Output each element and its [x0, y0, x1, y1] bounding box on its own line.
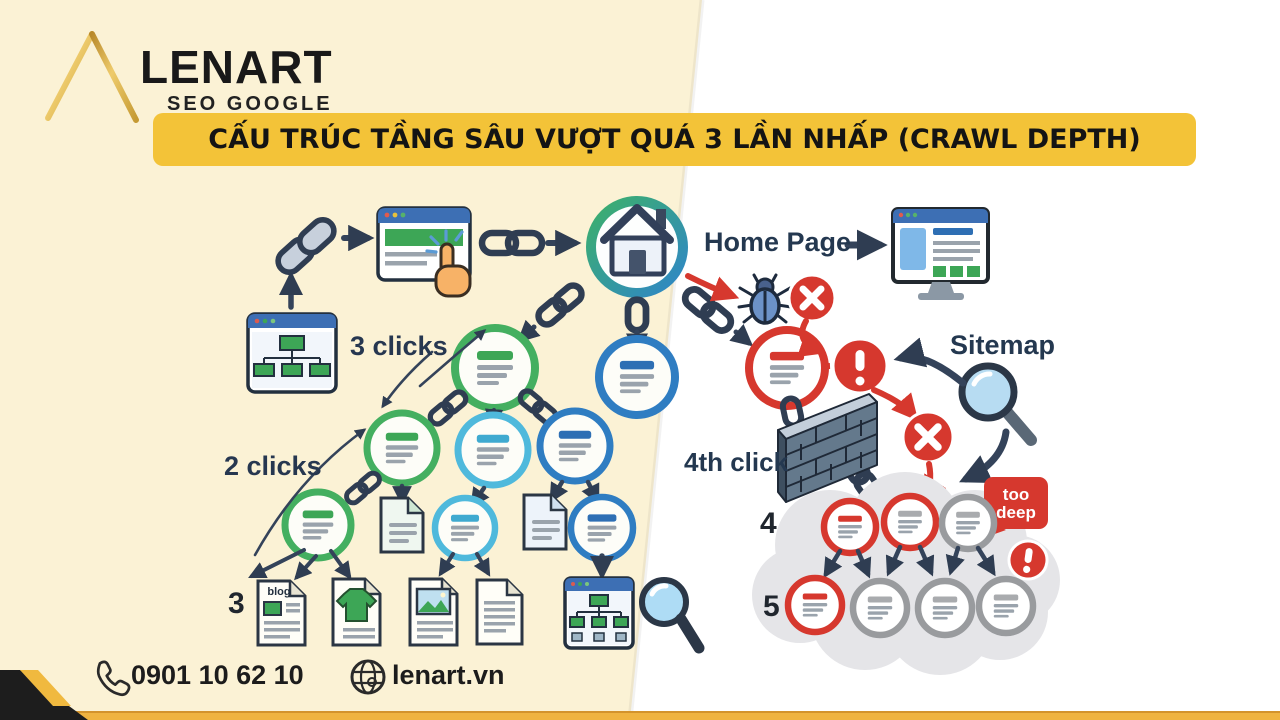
too-deep-line2: deep: [996, 504, 1036, 522]
label-depth-5: 5: [763, 590, 780, 624]
label-2-clicks: 2 clicks: [224, 451, 322, 482]
text-document-icon: [477, 580, 522, 644]
page-node-red: [749, 330, 825, 406]
label-blog-doc: blog: [262, 586, 296, 598]
label-too-deep: too deep: [984, 479, 1048, 529]
label-3-clicks: 3 clicks: [350, 331, 448, 362]
bottom-gold-strip: [0, 712, 1280, 720]
page-node-blue-l3: [571, 497, 633, 559]
crawl-depth-infographic: LENART SEO GOOGLE CẤU TRÚC TẦNG SÂU VƯỢT…: [0, 0, 1280, 720]
image-document-icon: [410, 579, 457, 645]
down-right-arrow: [736, 332, 749, 343]
page-node-lightblue-l2: [458, 415, 528, 485]
page-node-lightblue-l3: [435, 498, 495, 558]
document-icon: [524, 495, 566, 549]
label-sitemap: Sitemap: [950, 330, 1055, 361]
error-x-icon-2: [903, 412, 953, 462]
dark-curve-arrow: [966, 432, 1006, 479]
page-node-green-l3: [285, 492, 351, 558]
label-home-page: Home Page: [704, 227, 851, 258]
title-banner: CẤU TRÚC TẦNG SÂU VƯỢT QUÁ 3 LẦN NHẤP (C…: [153, 113, 1196, 166]
monitor-icon: [893, 209, 988, 300]
footer-phone-number: 0901 10 62 10: [131, 660, 304, 691]
page-node-d4-2: [884, 496, 936, 548]
error-x-icon: [789, 275, 835, 321]
sitemap-window-icon: [248, 314, 336, 392]
magnifier-icon-sitemap: [962, 366, 1031, 440]
label-4th-click: 4th click: [684, 447, 788, 478]
document-icon: [381, 498, 423, 552]
too-deep-line1: too: [1003, 486, 1029, 504]
page-node-d5-1: [788, 578, 842, 632]
magnifier-icon: [642, 580, 699, 648]
brand-logo-text: LENART: [140, 40, 333, 94]
footer-website: lenart.vn: [392, 660, 505, 691]
red-arrow: [874, 390, 914, 416]
product-document-icon: [333, 579, 380, 645]
home-icon: [591, 201, 683, 293]
label-depth-4: 4: [760, 507, 777, 541]
warning-icon: [833, 339, 887, 393]
crawler-bug-icon: [739, 275, 791, 323]
brick-wall-icon: [778, 394, 877, 502]
page-node-d4-1: [824, 501, 876, 553]
red-arrow: [688, 276, 733, 296]
page-node-blue-under-home: [599, 339, 675, 415]
page-node-d5-4: [979, 579, 1033, 633]
label-depth-3: 3: [228, 587, 245, 621]
sitemap-page-icon: [565, 578, 633, 648]
page-node-blue-l2: [540, 411, 610, 481]
